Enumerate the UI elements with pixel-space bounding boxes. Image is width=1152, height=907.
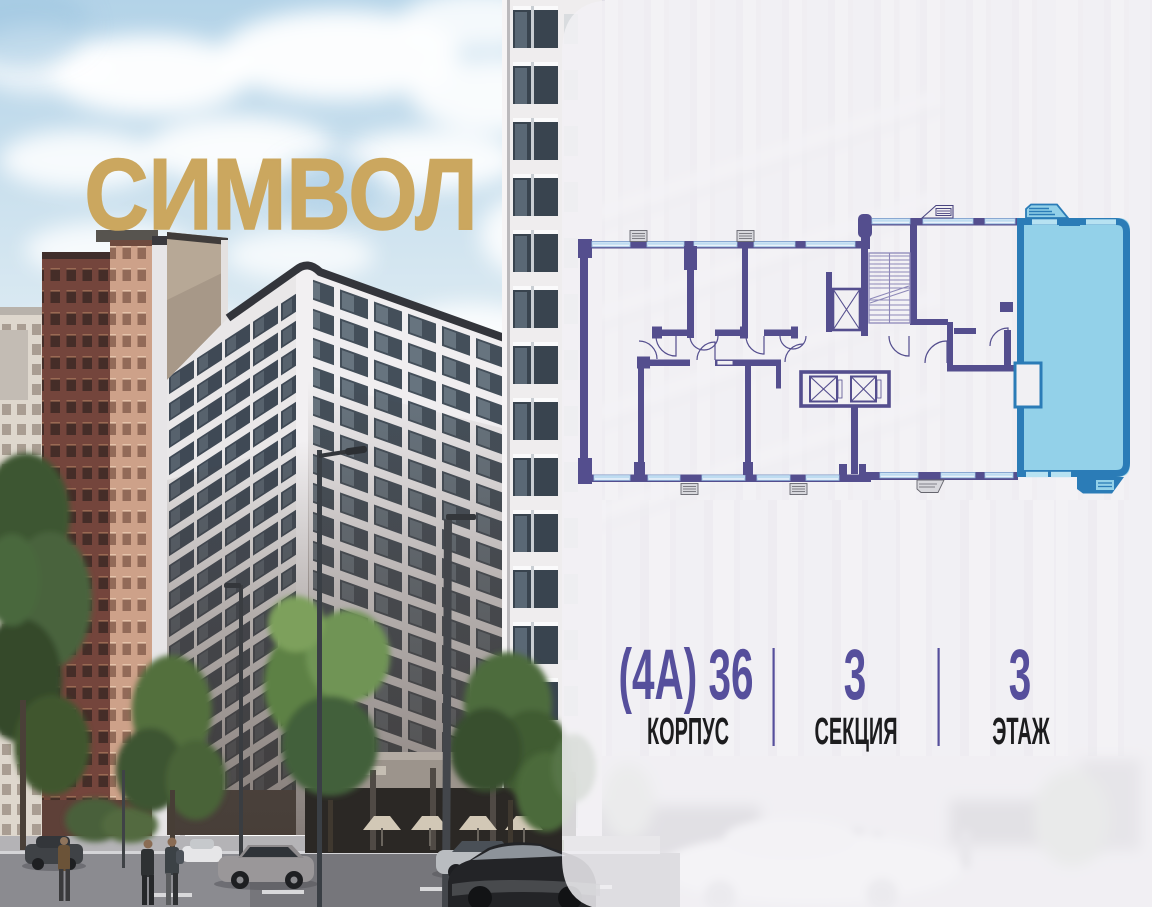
svg-text:ЭТАЖ: ЭТАЖ: [992, 711, 1050, 752]
svg-text:СЕКЦИЯ: СЕКЦИЯ: [814, 711, 897, 752]
svg-text:3: 3: [844, 636, 867, 715]
svg-text:КОРПУС: КОРПУС: [647, 711, 729, 752]
svg-text:СИМВОЛ: СИМВОЛ: [84, 139, 477, 252]
svg-text:3: 3: [1009, 636, 1032, 715]
svg-text:(4А) 36: (4А) 36: [619, 636, 754, 715]
